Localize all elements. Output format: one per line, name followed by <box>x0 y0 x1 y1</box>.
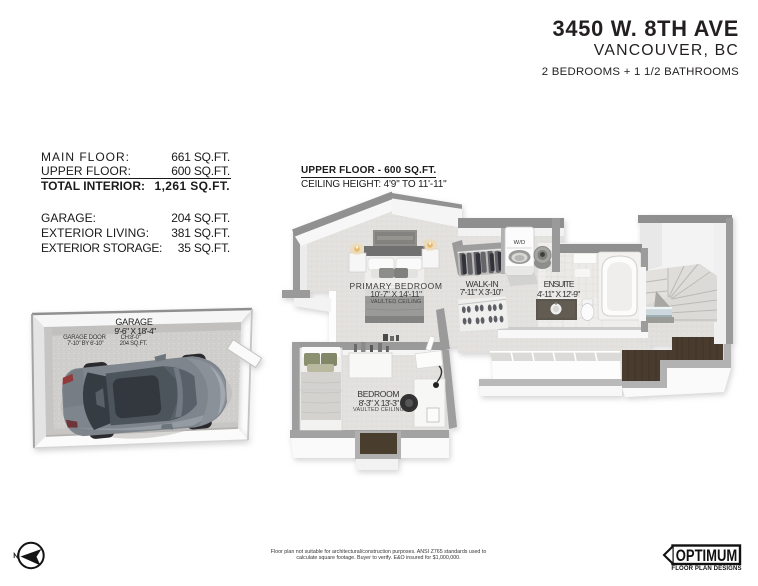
svg-text:FLOOR PLAN DESIGNS: FLOOR PLAN DESIGNS <box>671 565 741 572</box>
svg-text:OPTIMUM: OPTIMUM <box>676 547 738 565</box>
